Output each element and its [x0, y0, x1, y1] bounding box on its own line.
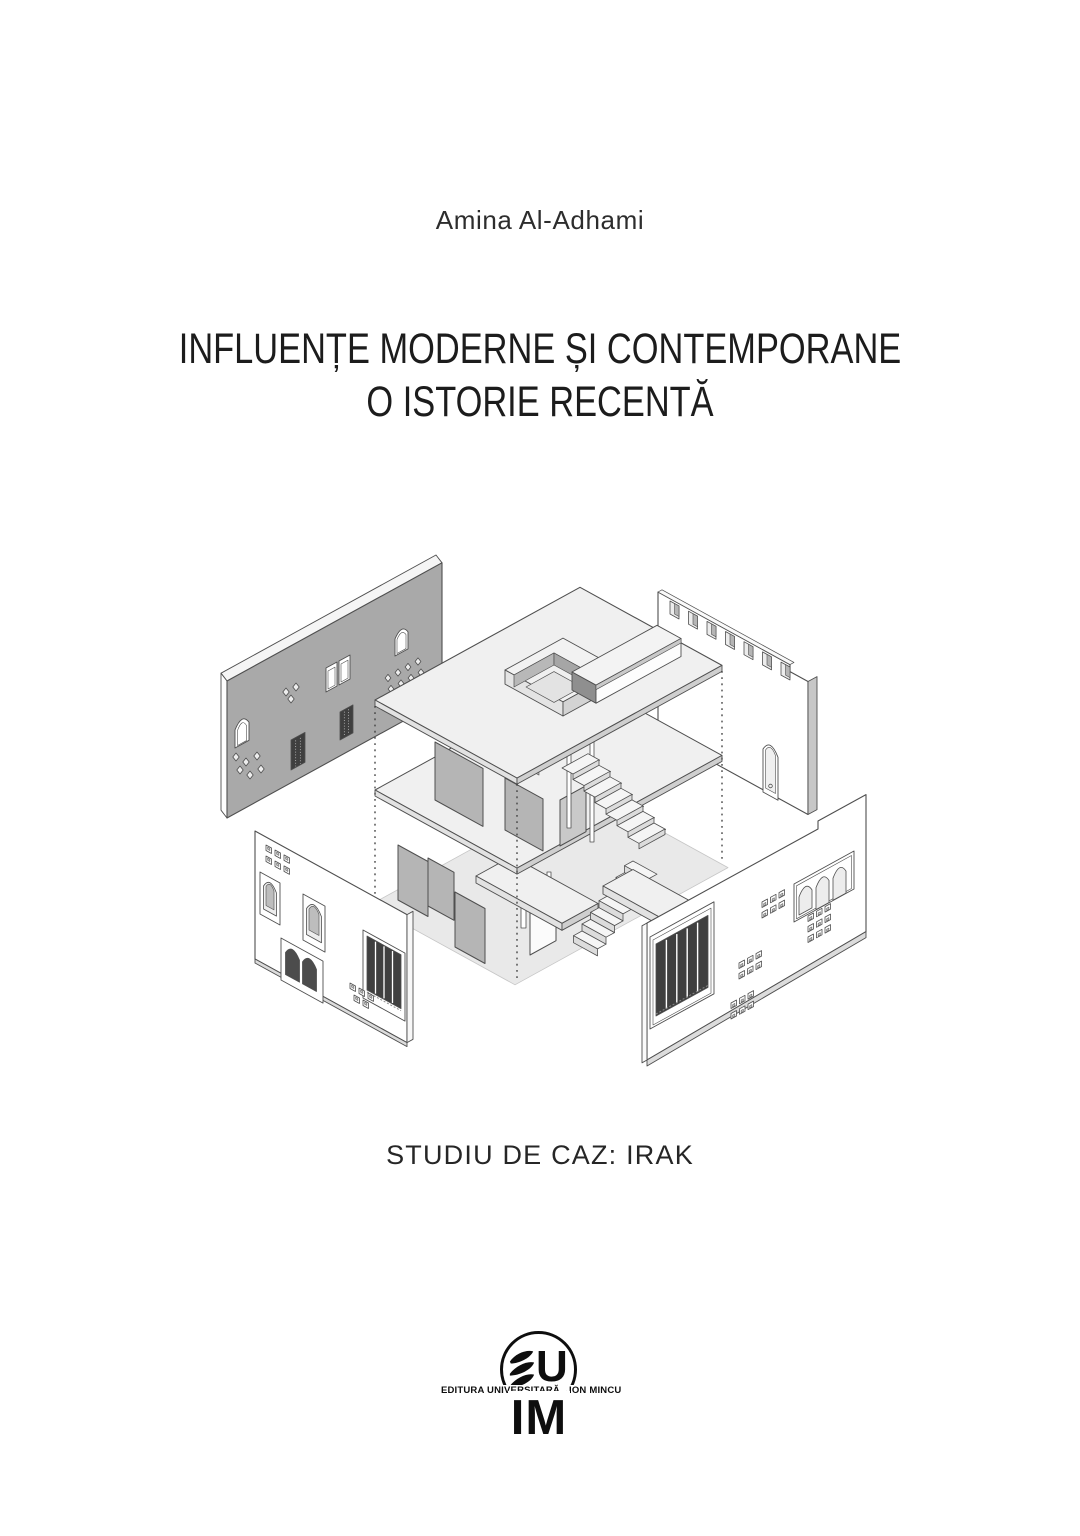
logo-letters-im: IM [470, 1394, 608, 1443]
facade-front-panel [255, 831, 413, 1047]
author-name: Amina Al-Adhami [0, 205, 1080, 236]
facade-right-panel [642, 795, 866, 1066]
title-line-1: INFLUENȚE MODERNE ȘI CONTEMPORANE [108, 323, 972, 376]
book-title: INFLUENȚE MODERNE ȘI CONTEMPORANE O ISTO… [0, 323, 1080, 429]
book-cover-page: { "cover": { "author": "Amina Al-Adhami"… [0, 0, 1080, 1536]
logo-letter-u: U [536, 1345, 568, 1389]
title-line-2: O ISTORIE RECENTĂ [108, 376, 972, 429]
publisher-logo: U EDITURA UNIVERSITARĂ ION MINCU IM [410, 1325, 670, 1455]
subtitle-case-study: STUDIU DE CAZ: IRAK [0, 1140, 1080, 1171]
